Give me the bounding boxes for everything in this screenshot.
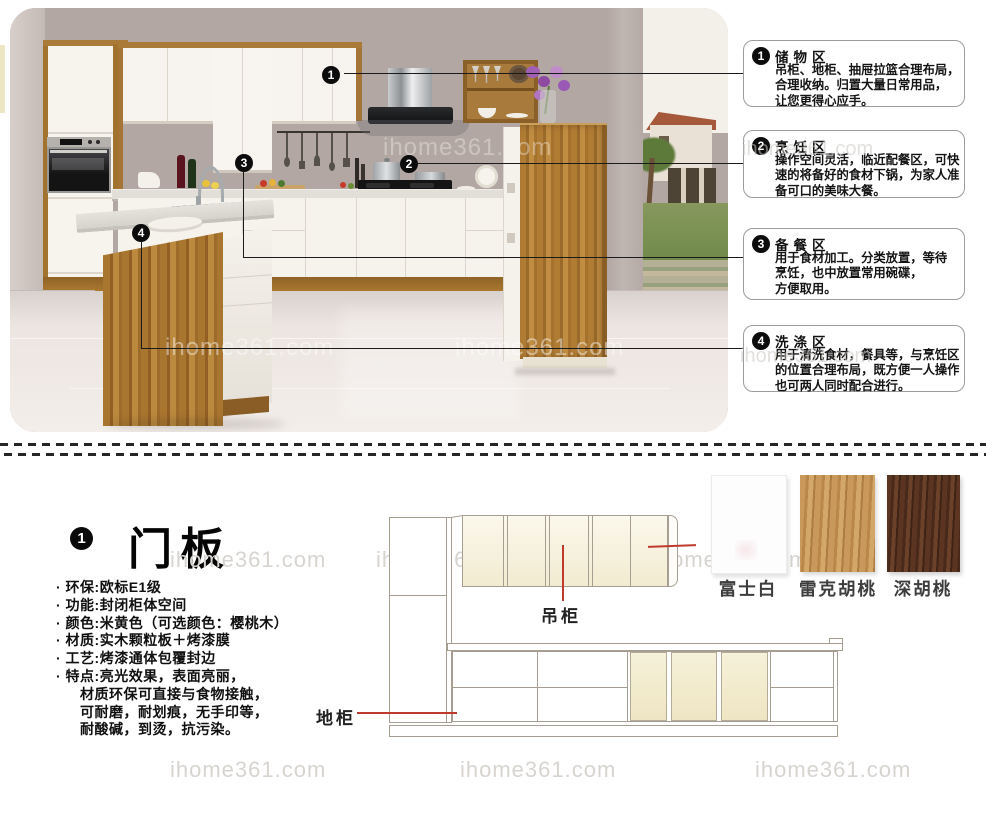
wine-bottle-icon (177, 155, 185, 188)
callout-line-4 (141, 348, 743, 349)
peninsula-shadow (515, 368, 615, 375)
sky (643, 8, 728, 133)
callout-2-line-3: 备可口的美味大餐。 (775, 184, 959, 199)
callout-box-prep: 3 备餐区 用于食材加工。分类放置，等待 烹饪，也中放置常用碗碟， 方便取用。 (743, 228, 965, 300)
diagram-hanging-divider-3b (592, 515, 593, 587)
swatch-white-label: 富士白 (703, 576, 793, 601)
marker-2-icon: 2 (400, 155, 418, 173)
veggie-icon (260, 180, 267, 187)
white-pitcher (138, 172, 160, 188)
diagram-hanging-cabinet (462, 515, 668, 587)
utensil-icon-4 (331, 133, 333, 164)
callout-line-3-vertical (243, 171, 244, 257)
spec-line-feature-2: 材质环保可直接与食物接触， (56, 686, 376, 704)
flower-icon (526, 66, 540, 78)
utensil-icon-2 (301, 133, 303, 163)
oven-display (60, 139, 82, 145)
oven-handle (50, 150, 107, 153)
swatch-dark-walnut (887, 475, 960, 572)
wall-cabinet-short-right-divider-2 (332, 48, 333, 121)
watermark: ihome361.com (170, 547, 326, 573)
wine-bottle-icon-2 (188, 159, 196, 188)
diagram-base-inner-edge (833, 651, 834, 722)
oven-column-lower-gap (48, 197, 113, 199)
diagram-hanging-divider-4 (630, 515, 631, 587)
island-drawers (223, 220, 272, 418)
swatch-white-smudge (735, 540, 757, 560)
page: ihome361.com ihome361.com ihome361.com 1… (0, 0, 986, 830)
kitchen-photo: ihome361.com ihome361.com ihome361.com (10, 8, 728, 432)
flower-vase (540, 90, 556, 124)
wall-cabinet-wood-edge (356, 48, 362, 121)
callout-1-line-3: 让您更得心应手。 (775, 94, 959, 109)
callout-line-3 (243, 257, 743, 258)
watermark: ihome361.com (740, 345, 871, 368)
callout-3-body: 用于食材加工。分类放置，等待 烹饪，也中放置常用碗碟， 方便取用。 (775, 251, 947, 297)
oven-column-door-gap (48, 132, 113, 134)
diagram-hanging-end-cap (668, 515, 678, 587)
cooktop-grate-2 (410, 183, 434, 188)
arch-column-2 (699, 168, 704, 206)
watermark: ihome361.com (460, 757, 616, 783)
diagram-plinth (389, 725, 838, 737)
callout-1-line-1: 吊柜、地柜、抽屉拉篮合理布局， (775, 63, 959, 78)
diagram-cream-door (630, 652, 667, 721)
wall-cabinet-short-right-divider (302, 48, 303, 121)
diagram-hanging-divider-b (507, 515, 508, 587)
diagram-base-drawer-line (452, 687, 628, 688)
spec-line-eco: · 环保:欧标E1级 (56, 579, 376, 597)
base-door-divider-5 (465, 198, 466, 277)
callout-line-2 (418, 163, 743, 164)
utensil-icon-3 (316, 133, 318, 157)
grass (643, 203, 728, 263)
marker-3-icon: 3 (235, 154, 253, 172)
wall-cabinet-short-left-divider (167, 48, 168, 121)
dashed-separator (0, 443, 986, 446)
marker-1-icon: 1 (322, 66, 340, 84)
section-number-icon: 1 (70, 527, 93, 550)
utensil-head-5 (343, 158, 350, 167)
swatch-dark-walnut-label: 深胡桃 (878, 576, 968, 601)
diagram-tall-cabinet (389, 517, 452, 723)
oven-door (47, 147, 111, 193)
diagram-counter-end-step (829, 638, 843, 644)
diagram-hanging-divider-2b (549, 515, 550, 587)
utensil-head-2 (299, 161, 305, 169)
veggie-icon-2 (269, 179, 276, 186)
arch-column (681, 168, 686, 206)
callout-3-line-2: 烹饪，也中放置常用碗碟， (775, 266, 947, 281)
floor-reflection (340, 308, 520, 418)
spec-line-function: · 功能:封闭柜体空间 (56, 597, 376, 615)
diagram-base-drawer-line-2 (770, 687, 833, 688)
hanging-cabinet-label: 吊柜 (541, 602, 581, 627)
wall-cabinet-short-right (272, 48, 356, 124)
leaning-plate (475, 165, 498, 188)
utensil-head-3 (314, 155, 320, 166)
utensil-head (284, 157, 290, 167)
wall-cabinet-tall-mid-divider (242, 48, 243, 170)
watermark: ihome361.com (170, 757, 326, 783)
diagram-cream-door-3 (721, 652, 768, 721)
watermark: ihome361.com (755, 757, 911, 783)
dashed-separator-2 (0, 453, 986, 456)
plate (506, 113, 528, 118)
base-pointer-line (357, 712, 457, 714)
flower-icon-4 (558, 80, 570, 91)
wall-cabinet-short-left (123, 48, 213, 124)
base-door-divider-3 (356, 198, 357, 277)
oven-knob-2 (96, 140, 100, 144)
spec-line-material: · 材质:实木颗粒板＋烤漆膜 (56, 632, 376, 650)
veggie-icon-4 (340, 182, 346, 188)
island-wood-panel (103, 232, 223, 426)
oven-knob (88, 140, 92, 144)
left-edge-tab (0, 45, 5, 113)
diagram-hanging-divider-3 (588, 515, 589, 587)
flower-icon-3 (550, 66, 563, 78)
cabinet-handle (507, 183, 515, 193)
island-floor-shadow (105, 418, 285, 430)
shelf-divider (467, 88, 534, 91)
diagram-tall-cabinet-inner-edge (446, 517, 447, 723)
swatch-light-walnut-label: 雷克胡桃 (793, 576, 883, 601)
base-cabinet-label: 地柜 (316, 704, 356, 729)
swatch-light-walnut (800, 475, 875, 572)
marker-4-icon: 4 (132, 224, 150, 242)
callout-1-number-icon: 1 (752, 47, 770, 65)
callout-line-4-vertical (141, 242, 142, 348)
callout-3-number-icon: 3 (752, 235, 770, 253)
diagram-counter (447, 643, 843, 651)
callout-line-1 (344, 73, 743, 74)
callout-3-line-3: 方便取用。 (775, 282, 947, 297)
spec-line-color: · 颜色:米黄色（可选颜色：樱桃木） (56, 615, 376, 633)
cabinet-handle-2 (507, 233, 515, 243)
base-door-divider-2 (305, 198, 306, 277)
callout-1-body: 吊柜、地柜、抽屉拉篮合理布局， 合理收纳。归置大量日常用品， 让您更得心应手。 (775, 63, 959, 109)
watermark: ihome361.com (742, 138, 873, 161)
callout-2-line-2: 速的将备好的食材下锅，为家人准 (775, 168, 959, 183)
diagram-hanging-divider (503, 515, 504, 587)
utensil-head-4 (329, 162, 335, 171)
diagram-hanging-divider-2 (545, 515, 546, 587)
diagram-cream-door-2 (671, 652, 717, 721)
veggie-icon-3 (278, 180, 285, 187)
cooktop-grate (366, 183, 390, 188)
callout-box-storage: 1 储物区 吊柜、地柜、抽屉拉篮合理布局， 合理收纳。归置大量日常用品， 让您更… (743, 40, 965, 107)
spec-line-feature: · 特点:亮光效果，表面亮丽， (56, 668, 376, 686)
utensil-icon (286, 133, 288, 159)
hanging-pointer-line (562, 545, 564, 601)
callout-1-line-2: 合理收纳。归置大量日常用品， (775, 78, 959, 93)
utensil-rail (277, 131, 370, 133)
spec-line-craft: · 工艺:烤漆通体包覆封边 (56, 650, 376, 668)
utensil-icon-5 (346, 133, 348, 160)
base-door-divider-4 (405, 198, 406, 277)
oven-glass-shine (52, 158, 104, 170)
diagram-tall-cabinet-divider (389, 595, 447, 596)
callout-4-line-3: 也可两人同时配合进行。 (775, 379, 959, 394)
stock-pot (373, 162, 400, 182)
callout-3-line-1: 用于食材加工。分类放置，等待 (775, 251, 947, 266)
